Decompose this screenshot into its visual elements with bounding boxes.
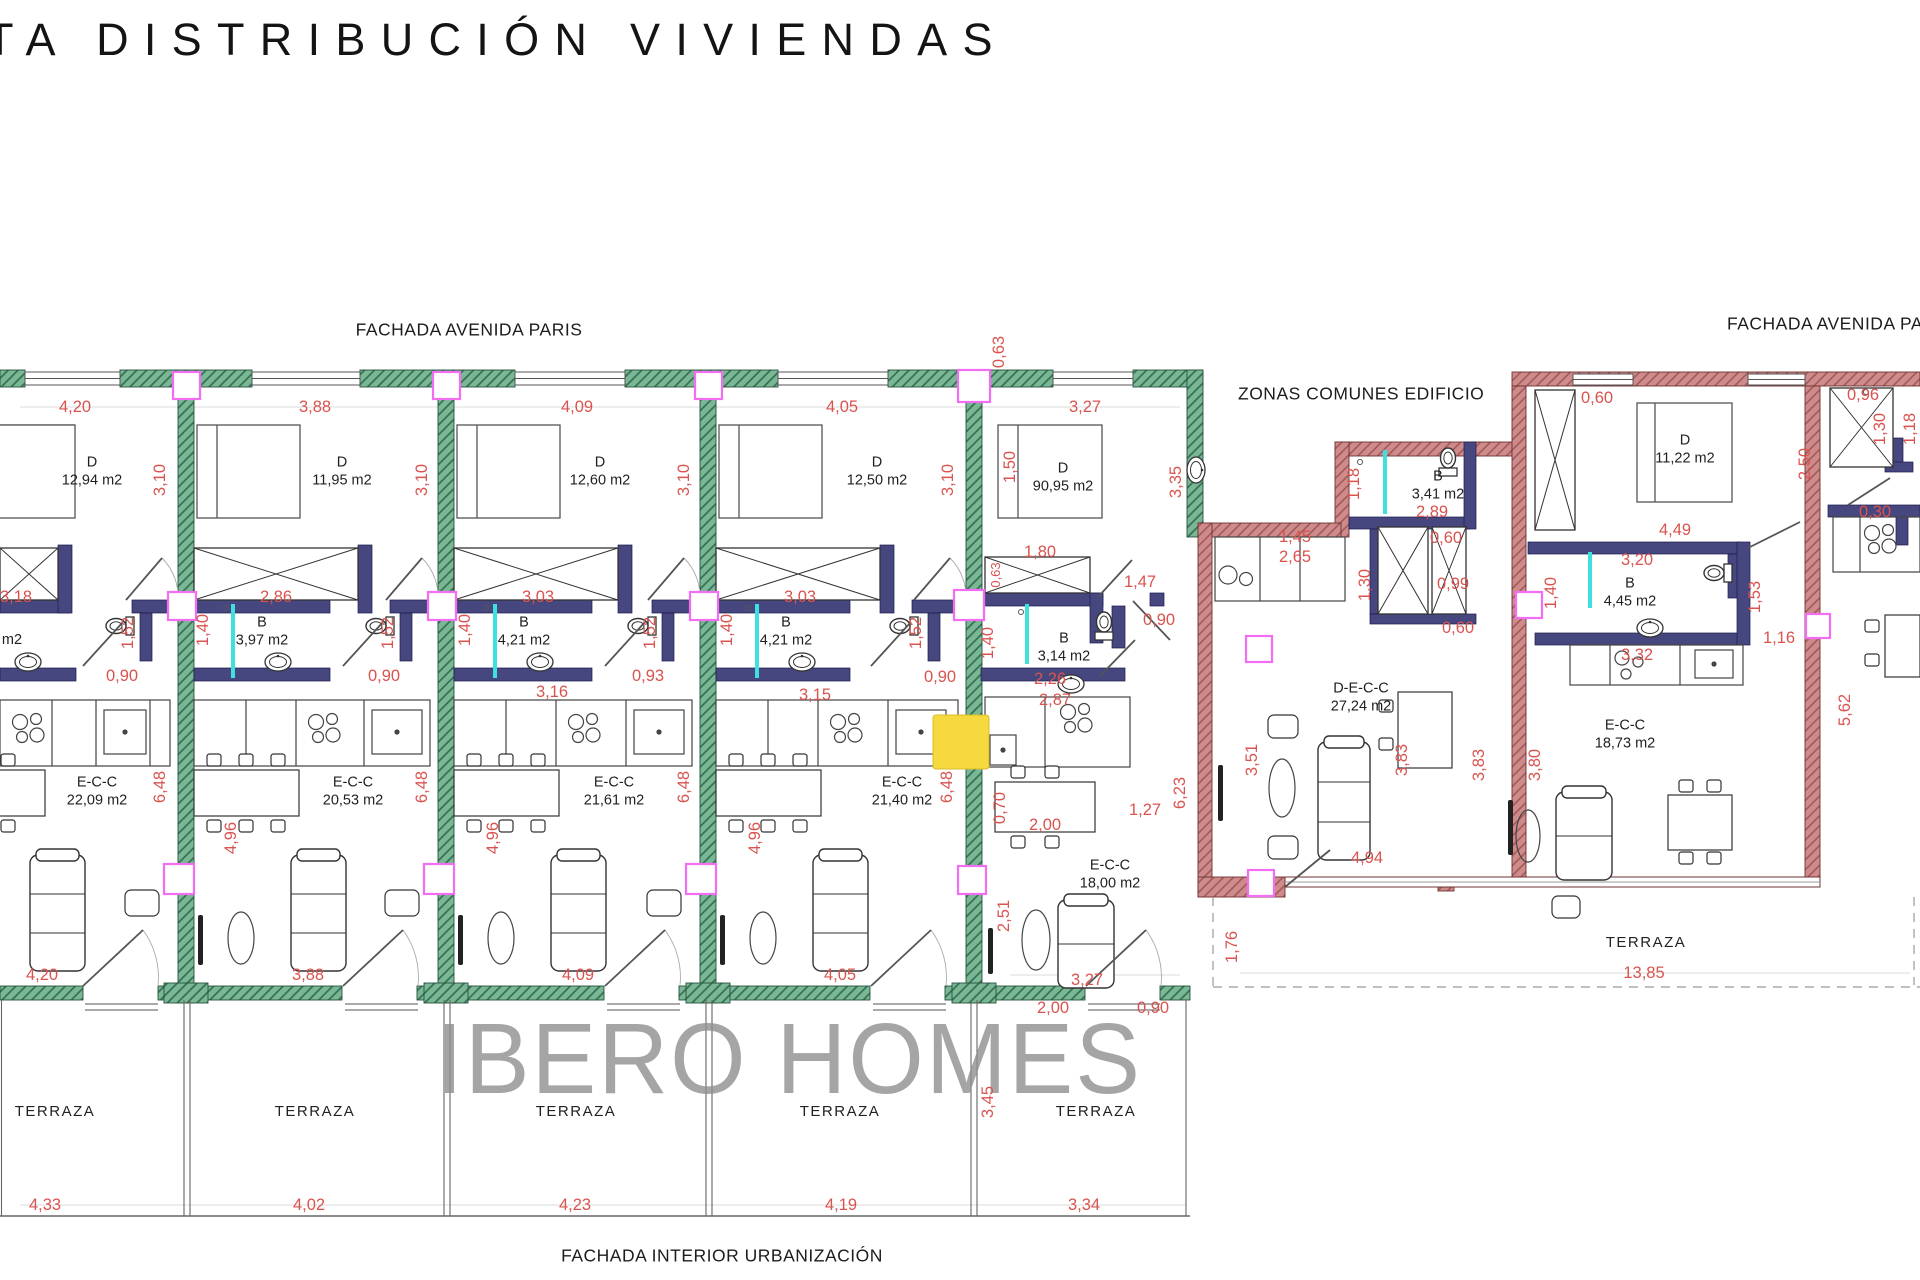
page-title: TA DISTRIBUCIÓN VIVIENDAS: [0, 14, 1008, 66]
elevator-shaft: [1378, 527, 1428, 614]
watermark: IBERO HOMES: [436, 1002, 1142, 1117]
stair-shaft: [1432, 527, 1466, 614]
floor-plan-page: TA DISTRIBUCIÓN VIVIENDAS IBERO HOMES 4,…: [0, 0, 1920, 1280]
highlight-marker: [933, 715, 989, 769]
